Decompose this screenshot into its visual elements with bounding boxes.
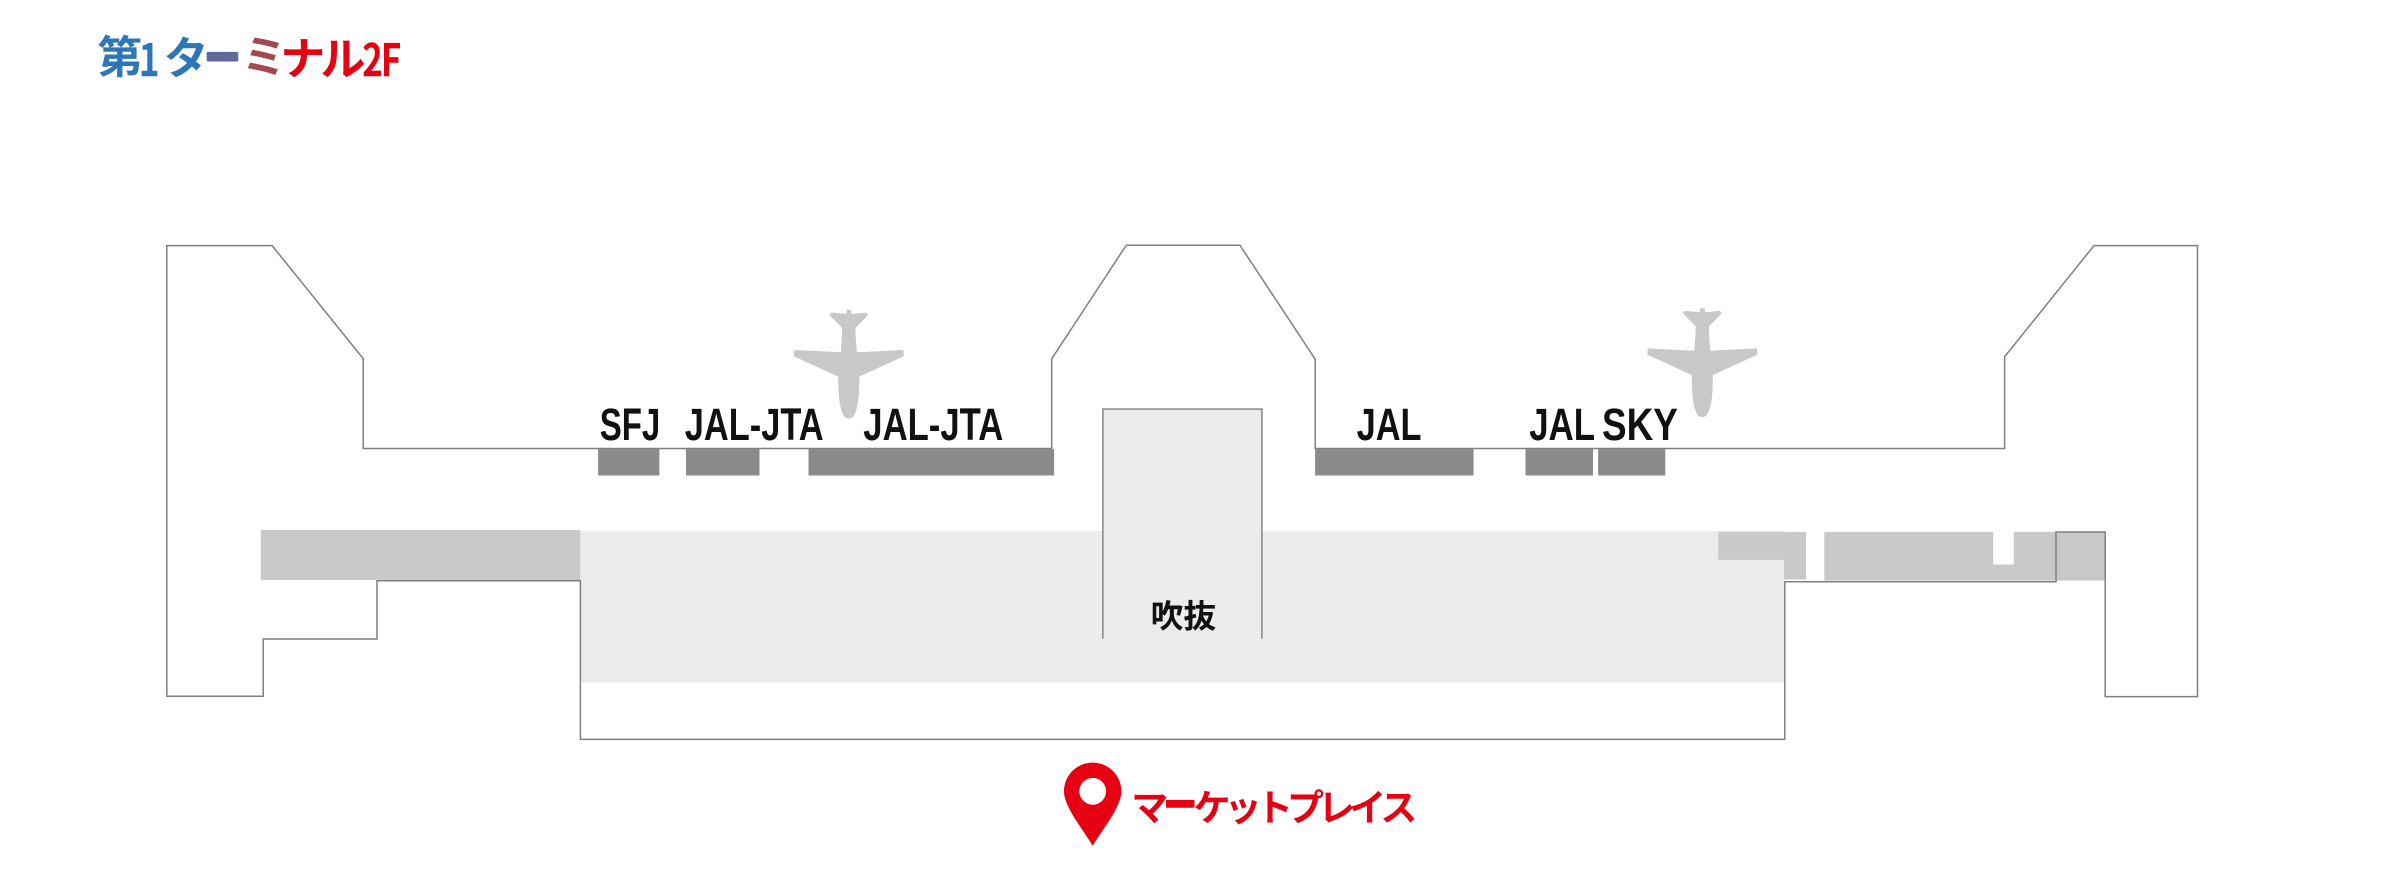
- svg-text:SKY: SKY: [1602, 399, 1678, 450]
- svg-text:SFJ: SFJ: [600, 399, 661, 450]
- svg-text:JAL: JAL: [1529, 399, 1595, 450]
- svg-text:JAL: JAL: [1357, 399, 1422, 450]
- svg-text:JAL-JTA: JAL-JTA: [863, 399, 1003, 450]
- svg-text:JAL-JTA: JAL-JTA: [685, 399, 824, 450]
